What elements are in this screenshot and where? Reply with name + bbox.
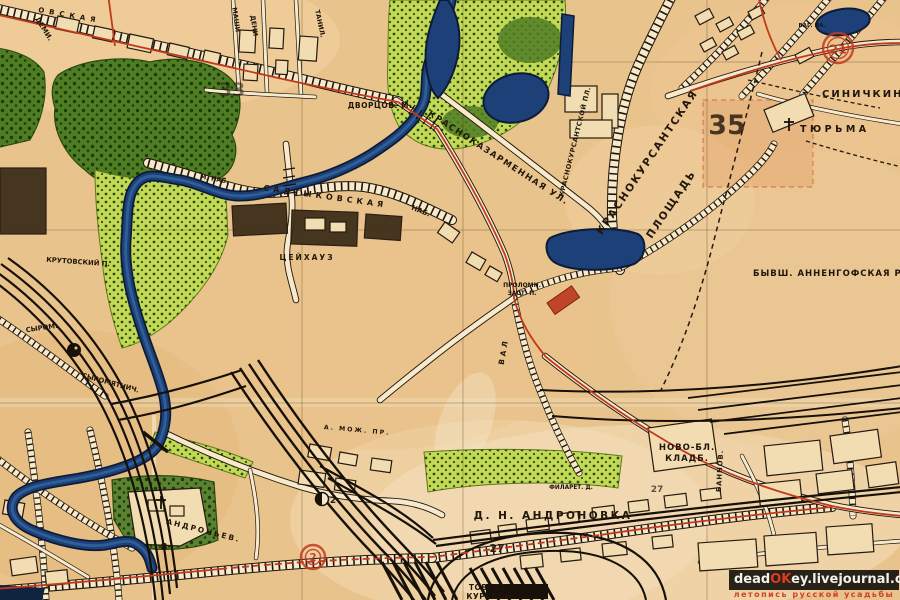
- watermark-suffix: ey.livejournal.com: [791, 572, 900, 587]
- label-tseykhauz: ЦЕЙХАУЗ: [279, 253, 334, 262]
- watermark-url: deadOKey.livejournal.com: [729, 570, 899, 590]
- label-kurskoy: КУРСКОЙ: [466, 592, 511, 600]
- svg-text:2: 2: [309, 553, 316, 564]
- watermark-accent: OK: [770, 572, 791, 587]
- label-vag-pa: ВАГ. ПА.: [799, 23, 826, 29]
- district-number-35: 35: [708, 110, 746, 141]
- large-dark-building: [0, 168, 46, 234]
- poi-dot-icon: [67, 343, 81, 357]
- poi-number-2: 2: [330, 496, 336, 506]
- label-annenhof-grove: БЫВШ. АННЕНГОФСКАЯ РОЩА: [753, 269, 900, 279]
- label-novo-bl-2: КЛАДБ.: [665, 454, 709, 464]
- palace-building: [232, 203, 287, 236]
- district-number-27a: 27: [489, 542, 504, 555]
- route-number-8: 8: [161, 542, 168, 553]
- label-dvortsov-bridge: ДВОРЦОВ. М.: [348, 101, 413, 110]
- watermark: deadOKey.livejournal.com летопись русско…: [729, 570, 899, 599]
- historic-city-map: ОВСКАЯДЕМИ.МАШИДЕНИТАНИЛ.ДВОРЦОВ. М.М. Н…: [0, 0, 900, 600]
- svg-text:21: 21: [829, 42, 847, 57]
- tram-route-marker: 21: [823, 33, 853, 63]
- label-tyurma: ТЮРЬМА: [800, 124, 870, 135]
- poi-half-circle-icon: [316, 493, 329, 506]
- watermark-tagline: летопись русской усадьбы: [729, 590, 899, 599]
- map-canvas: ОВСКАЯДЕМИ.МАШИДЕНИТАНИЛ.ДВОРЦОВ. М.М. Н…: [0, 0, 900, 600]
- watermark-prefix: dead: [734, 572, 770, 587]
- label-filaret: ФИЛАРЕТ. Д.: [549, 485, 593, 491]
- district-number-27b: 27: [651, 485, 664, 495]
- label-prolomn: ПРОЛОМН.: [503, 282, 541, 289]
- label-zast: ЗАСТ. П.: [507, 290, 536, 297]
- pond-c: [547, 229, 645, 270]
- label-novo-bl-1: НОВО-БЛ.: [659, 443, 715, 453]
- label-tov-st: ТОВ. СТ.: [469, 583, 509, 592]
- label-andronovka: Д. Н. АНДРОНОВКА: [474, 510, 633, 522]
- label-sinichkina: СИНИЧКИНА: [822, 89, 900, 100]
- district-number-33: 33: [219, 79, 245, 101]
